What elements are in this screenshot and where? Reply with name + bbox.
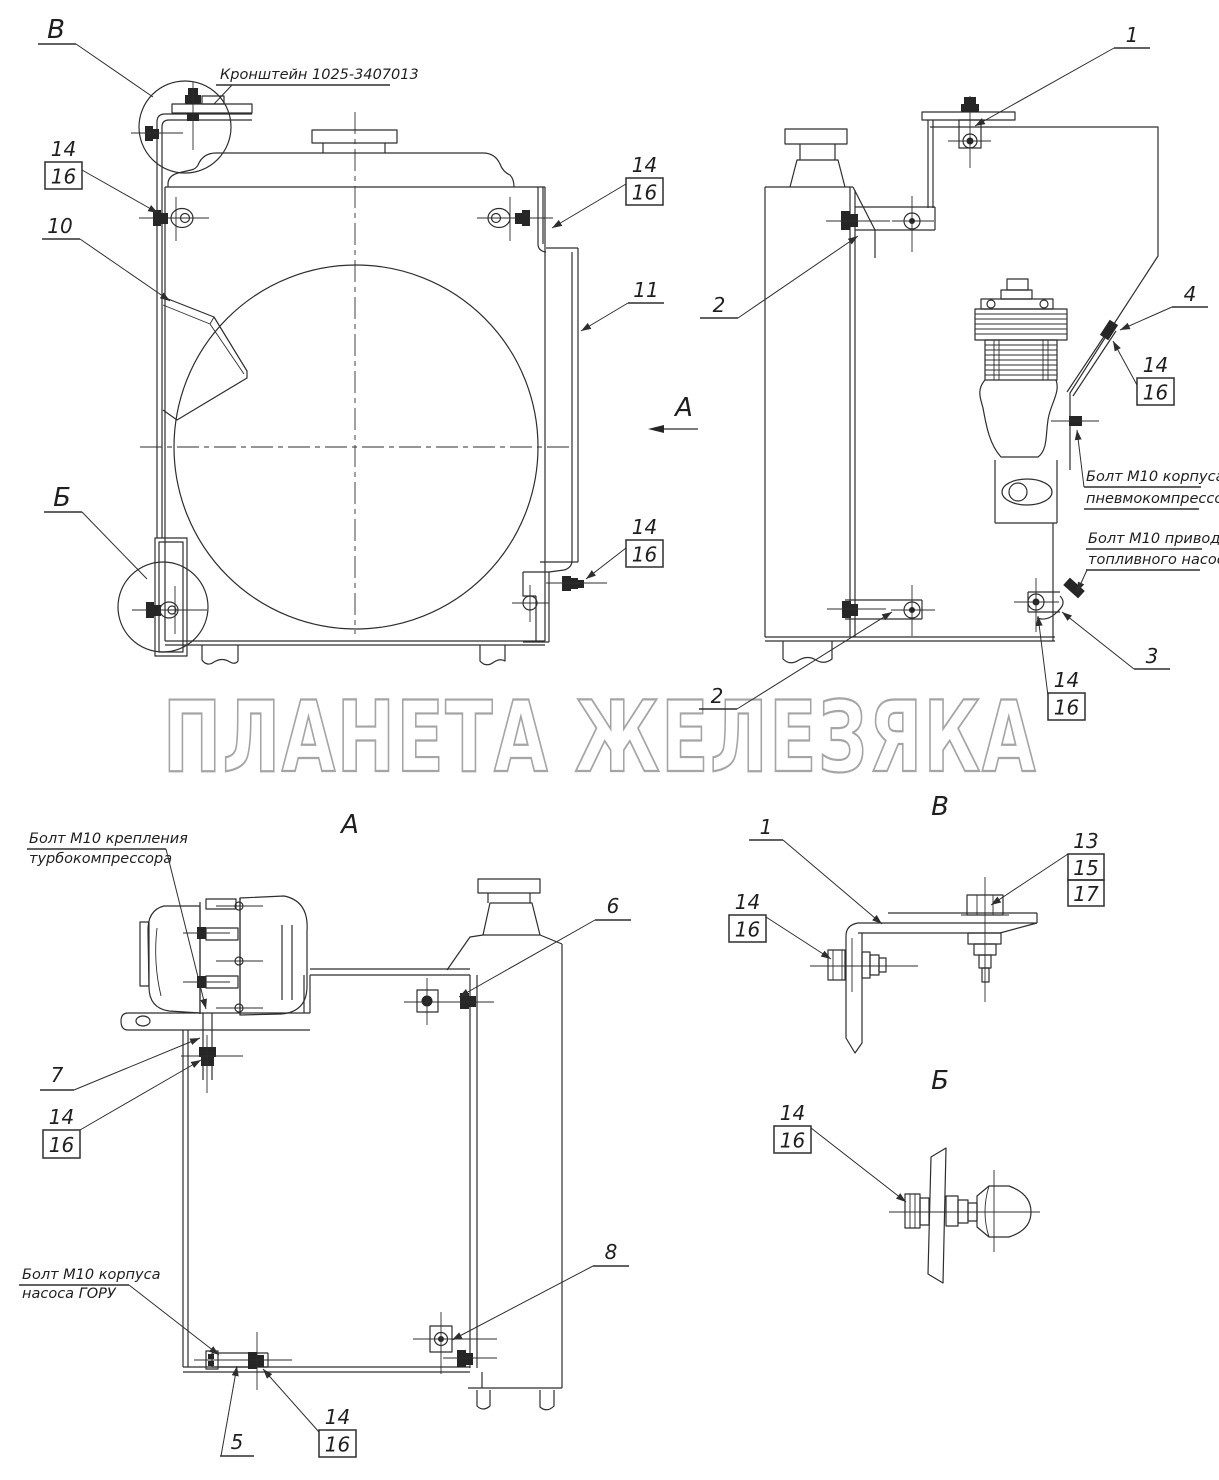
svg-text:Болт М10 привода: Болт М10 привода [1088, 531, 1219, 547]
svg-text:14: 14 [1054, 668, 1079, 692]
svg-text:14: 14 [632, 153, 657, 177]
bracket-part-label: Кронштейн 1025-3407013 [214, 67, 419, 104]
direction-label-a: А [673, 393, 693, 423]
svg-text:Болт М10 корпуса: Болт М10 корпуса [1086, 469, 1219, 485]
bracket-label-text: Кронштейн 1025-3407013 [220, 67, 419, 83]
svg-text:насоса ГОРУ: насоса ГОРУ [22, 1286, 117, 1302]
svg-text:Болт М10 крепления: Болт М10 крепления [29, 831, 188, 847]
svg-text:15: 15 [1073, 856, 1098, 880]
callout-11: 11 [581, 278, 664, 331]
svg-text:14: 14 [1143, 353, 1168, 377]
svg-text:пневмокомпрессора: пневмокомпрессора [1086, 491, 1219, 507]
callout-1-detail: 1 [749, 815, 882, 924]
svg-text:14: 14 [632, 515, 657, 539]
svg-text:6: 6 [607, 894, 620, 918]
callout-7: 7 [40, 1038, 200, 1090]
view-v-callouts: 1 14 16 13 15 17 [729, 815, 1104, 959]
callout-6: 6 [459, 894, 631, 997]
callout-3: 3 [1062, 612, 1170, 669]
svg-text:16: 16 [780, 1129, 805, 1153]
callout-5: 5 [220, 1366, 254, 1456]
svg-text:11: 11 [633, 278, 658, 302]
svg-text:17: 17 [1073, 882, 1099, 906]
svg-text:8: 8 [605, 1240, 618, 1264]
front-view-drawing [118, 81, 607, 665]
callout-14: 14 [51, 137, 76, 161]
svg-text:16: 16 [1143, 381, 1168, 405]
deflector-plate [163, 297, 247, 420]
front-view-callouts: В Кронштейн 1025-3407013 14 16 10 Б 14 1… [38, 15, 664, 579]
goru-bolt-label: Болт М10 корпуса насоса ГОРУ [19, 1267, 219, 1355]
direction-arrowhead [648, 425, 664, 433]
detail-marker-v-callout: В [38, 15, 153, 97]
view-direction-arrow: А [648, 393, 698, 433]
detail-circle-b [118, 562, 208, 652]
turbocompressor [121, 896, 310, 1093]
callout-14-16-fuel: 14 16 [1038, 616, 1085, 720]
callout-4: 4 [1120, 282, 1208, 330]
callout-14-16-compressor: 14 16 [1113, 341, 1174, 405]
watermark: ПЛАНЕТА ЖЕЛЕЗЯКА [163, 681, 1037, 795]
svg-text:14: 14 [325, 1405, 350, 1429]
svg-text:16: 16 [49, 1133, 74, 1157]
svg-text:16: 16 [632, 543, 657, 567]
svg-text:топливного насоса: топливного насоса [1088, 552, 1219, 568]
view-v-title: В [931, 792, 949, 822]
svg-text:16: 16 [632, 181, 657, 205]
svg-text:Болт М10 корпуса: Болт М10 корпуса [22, 1267, 160, 1283]
svg-text:16: 16 [735, 918, 760, 942]
view-v-drawing: В [810, 792, 1037, 1053]
callout-1: 1 [975, 23, 1150, 126]
svg-text:2: 2 [713, 293, 726, 317]
turbo-bolt-label: Болт М10 крепления турбокомпрессора [27, 831, 206, 1009]
view-b-callouts: 14 16 [774, 1101, 906, 1202]
callout-14-16-top-right: 14 16 [552, 153, 663, 228]
view-a-callouts: Болт М10 крепления турбокомпрессора 6 7 … [19, 831, 631, 1457]
callout-16: 16 [51, 165, 76, 189]
svg-text:13: 13 [1073, 829, 1098, 853]
svg-text:3: 3 [1146, 644, 1159, 668]
svg-text:2: 2 [711, 684, 724, 708]
svg-text:10: 10 [47, 214, 72, 238]
svg-text:14: 14 [735, 890, 760, 914]
svg-text:5: 5 [231, 1430, 244, 1454]
svg-text:7: 7 [51, 1063, 64, 1087]
callout-8: 8 [452, 1240, 629, 1340]
fuel-pump-bolt-label: Болт М10 привода топливного насоса [1077, 531, 1219, 592]
view-b-title: Б [931, 1066, 949, 1096]
side-view-drawing [765, 96, 1158, 663]
technical-drawing: ПЛАНЕТА ЖЕЛЕЗЯКА [0, 0, 1219, 1480]
svg-text:1: 1 [1126, 23, 1139, 47]
callout-14-16-goru: 14 16 [263, 1369, 356, 1457]
view-a-drawing: А [121, 810, 562, 1410]
svg-text:16: 16 [325, 1433, 350, 1457]
callout-2-top: 2 [700, 236, 858, 318]
detail-marker-b: Б [53, 483, 71, 513]
callout-10: 10 [42, 214, 170, 301]
svg-text:1: 1 [760, 815, 773, 839]
view-b-drawing: Б [889, 1066, 1040, 1283]
mount-plate [928, 1148, 946, 1283]
callout-13-15-17: 13 15 17 [991, 829, 1104, 906]
callout-14-16-bottom-right: 14 16 [586, 515, 663, 579]
view-a-title: А [339, 810, 359, 840]
detail-marker-v: В [47, 15, 65, 45]
svg-text:14: 14 [49, 1105, 74, 1129]
callout-14-16-detail-b: 14 16 [774, 1101, 906, 1202]
svg-text:16: 16 [1054, 696, 1079, 720]
callout-14-16-top-left: 14 16 [45, 137, 158, 213]
pneumo-bolt-label: Болт М10 корпуса пневмокомпрессора [1077, 430, 1219, 509]
callout-14-16-turbo: 14 16 [43, 1060, 201, 1158]
svg-text:14: 14 [780, 1101, 805, 1125]
detail-marker-b-callout: Б [44, 483, 147, 579]
drawing-sheet: ПЛАНЕТА ЖЕЛЕЗЯКА [0, 0, 1219, 1480]
svg-text:турбокомпрессора: турбокомпрессора [29, 851, 172, 867]
callout-14-16-detail-v: 14 16 [729, 890, 831, 959]
svg-text:4: 4 [1184, 282, 1197, 306]
